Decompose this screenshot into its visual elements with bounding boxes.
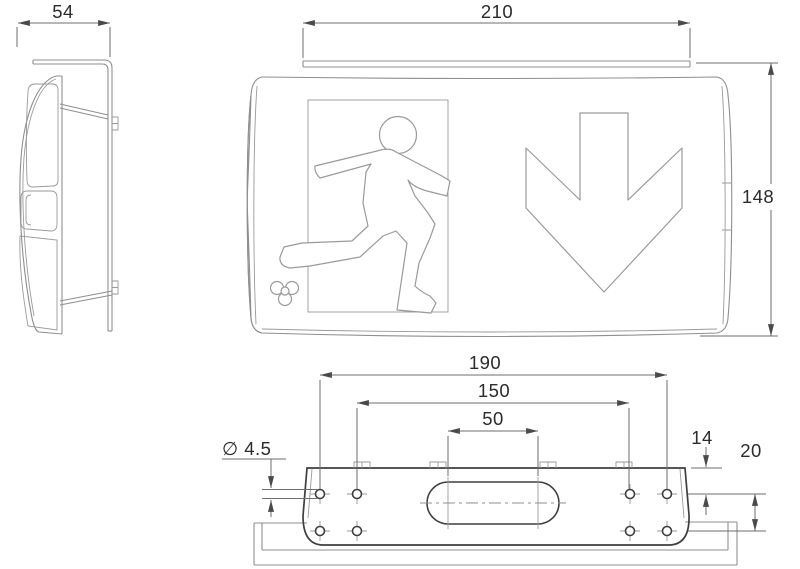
running-man-head	[380, 117, 417, 154]
technical-drawing-canvas: 54	[0, 0, 800, 569]
dim-text-side-depth: 54	[52, 1, 74, 22]
dim-text-slot-span: 50	[482, 408, 504, 429]
dim-text-bracket-outer: 190	[469, 352, 501, 373]
dim-text-hole-row-gap: 20	[740, 440, 762, 461]
dim-text-hole-diameter: ∅ 4.5	[222, 438, 271, 459]
dim-side-depth: 54	[17, 1, 110, 57]
logo-mark	[271, 282, 299, 306]
side-view: 54	[17, 1, 118, 334]
dim-hole-row-gap: 20	[688, 440, 766, 531]
dim-bracket-inner-span: 150	[357, 380, 629, 489]
drawing-svg: 54	[0, 0, 800, 569]
bracket-slot	[420, 477, 566, 529]
dim-text-front-width: 210	[481, 1, 513, 22]
front-mounting-rail	[303, 61, 690, 67]
dim-front-width: 210	[303, 1, 690, 58]
dim-text-front-height: 148	[742, 186, 774, 207]
side-back-plate	[33, 60, 118, 331]
running-man-body	[280, 149, 450, 313]
running-man-pictogram	[280, 100, 450, 313]
down-arrow-pictogram	[526, 113, 682, 292]
side-body	[20, 76, 62, 334]
dim-hole-diameter: ∅ 4.5	[222, 438, 317, 517]
bottom-view: 190 150 50 ∅ 4.5	[222, 352, 766, 565]
dim-text-bracket-inner: 150	[478, 380, 510, 401]
bracket-tabs	[354, 462, 632, 468]
front-view: 210	[247, 1, 778, 337]
dim-front-height: 148	[696, 63, 778, 336]
side-mounting-arms	[60, 104, 112, 305]
dim-text-hole-top-offset: 14	[691, 427, 713, 448]
dim-slot-span: 50	[448, 408, 538, 476]
